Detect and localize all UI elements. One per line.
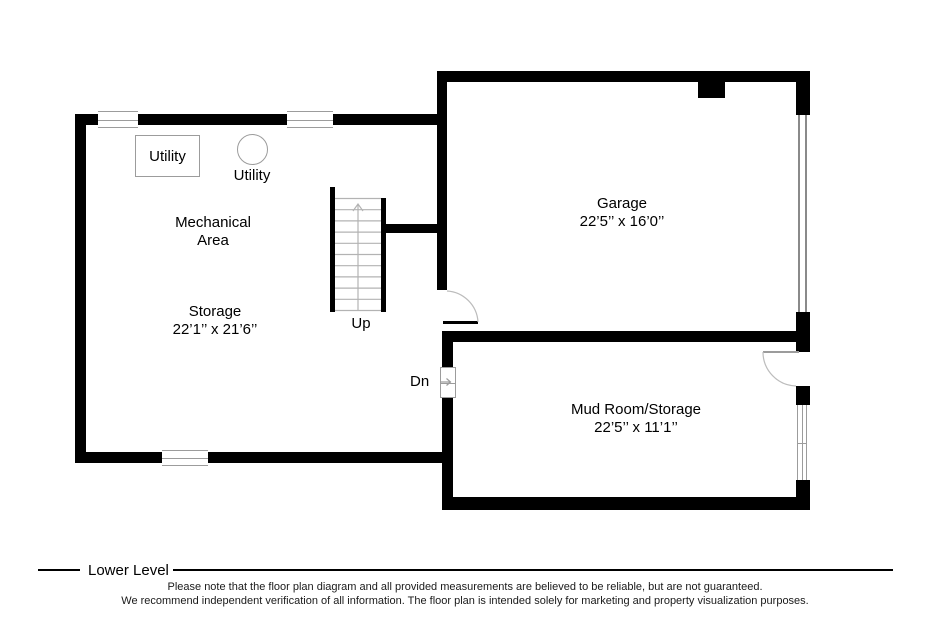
mudroom-door-leaf xyxy=(763,351,799,353)
window-mudroom-right xyxy=(797,405,807,480)
room-name: Storage xyxy=(173,303,258,321)
storage-room-label: Storage 22’1’’ x 21’6’’ xyxy=(173,303,258,339)
wall-mudroom-bottom xyxy=(442,497,810,510)
garage-column xyxy=(698,82,725,98)
wall-garage-left xyxy=(437,71,447,290)
wall-garage-top xyxy=(437,71,810,82)
stair-step-line xyxy=(441,383,455,384)
window-storage-bottom xyxy=(162,450,208,466)
room-dims: 22’1’’ x 21’6’’ xyxy=(173,321,258,339)
disclaimer-line-2: We recommend independent verification of… xyxy=(0,595,930,609)
utility-tank-label: Utility xyxy=(234,167,271,185)
wall-mudroom-left-lower xyxy=(442,398,453,497)
wall-right-mid-upper xyxy=(796,312,810,352)
window-pane-line xyxy=(162,458,208,459)
window-sash-line xyxy=(798,443,806,444)
wall-right-mid-lower xyxy=(796,386,810,405)
plan-linework xyxy=(0,0,930,620)
room-name: Garage xyxy=(580,195,665,213)
mechanical-area-label: Mechanical Area xyxy=(175,214,251,250)
stair-down-steps xyxy=(440,367,456,398)
stair-down-label: Dn xyxy=(410,373,429,390)
wall-stair-left xyxy=(330,187,335,312)
wall-storage-left xyxy=(75,114,86,463)
stair-up-treads xyxy=(335,199,381,311)
room-dims: 22’5’’ x 11’1’’ xyxy=(571,419,701,437)
floor-plan-page: Utility Utility Mechanical Area Storage … xyxy=(0,0,930,620)
wall-garage-right-top xyxy=(796,71,810,115)
mudroom-room-label: Mud Room/Storage 22’5’’ x 11’1’’ xyxy=(571,401,701,437)
garage-entry-door-leaf xyxy=(443,321,478,324)
mudroom-door-swing-arc xyxy=(763,352,796,386)
disclaimer: Please note that the floor plan diagram … xyxy=(0,581,930,608)
floor-label: Lower Level xyxy=(88,562,169,579)
wall-storage-bottom xyxy=(75,452,453,463)
utility-closet: Utility xyxy=(135,135,200,177)
stair-up-label: Up xyxy=(351,315,370,333)
window-pane-line xyxy=(287,120,333,121)
window-storage-top-2 xyxy=(287,111,333,128)
utility-closet-label: Utility xyxy=(149,148,186,165)
stair-up-direction-arrow xyxy=(353,204,363,311)
wall-stair-right xyxy=(381,198,386,312)
wall-stair-hall xyxy=(383,224,442,233)
floor-label-line-left xyxy=(38,569,80,571)
floor-label-line-right xyxy=(173,569,893,571)
disclaimer-line-1: Please note that the floor plan diagram … xyxy=(0,581,930,595)
wall-mudroom-left-upper xyxy=(442,342,453,368)
room-name: Mud Room/Storage xyxy=(571,401,701,419)
window-pane-line xyxy=(98,120,138,121)
utility-tank xyxy=(237,134,268,165)
garage-door-swing-arc xyxy=(447,291,478,322)
window-storage-top-1 xyxy=(98,111,138,128)
garage-room-label: Garage 22’5’’ x 16’0’’ xyxy=(580,195,665,231)
wall-garage-mudroom-divider xyxy=(442,331,796,342)
room-dims: 22’5’’ x 16’0’’ xyxy=(580,213,665,231)
garage-overhead-door xyxy=(798,115,807,312)
